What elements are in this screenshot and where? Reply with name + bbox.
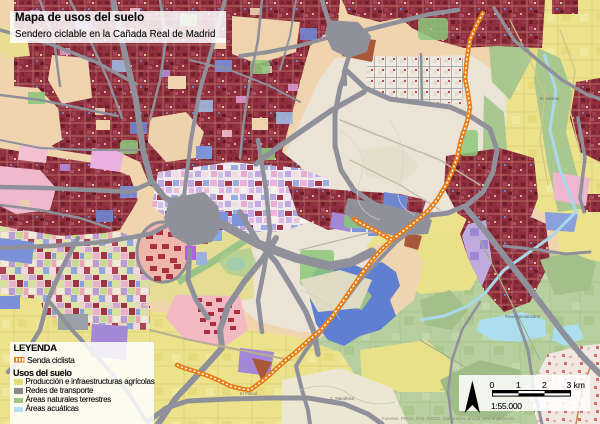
svg-text:R. Jarama: R. Jarama	[540, 96, 560, 101]
svg-text:Rivas-Vaciamadrid: Rivas-Vaciamadrid	[505, 314, 541, 319]
svg-text:El Porcal: El Porcal	[240, 391, 257, 396]
svg-text:C. Marañosa: C. Marañosa	[330, 396, 355, 401]
svg-text:Fuentes: PNOA, IGN, SIOSE. Ela: Fuentes: PNOA, IGN, SIOSE. Elaboración p…	[382, 416, 514, 421]
